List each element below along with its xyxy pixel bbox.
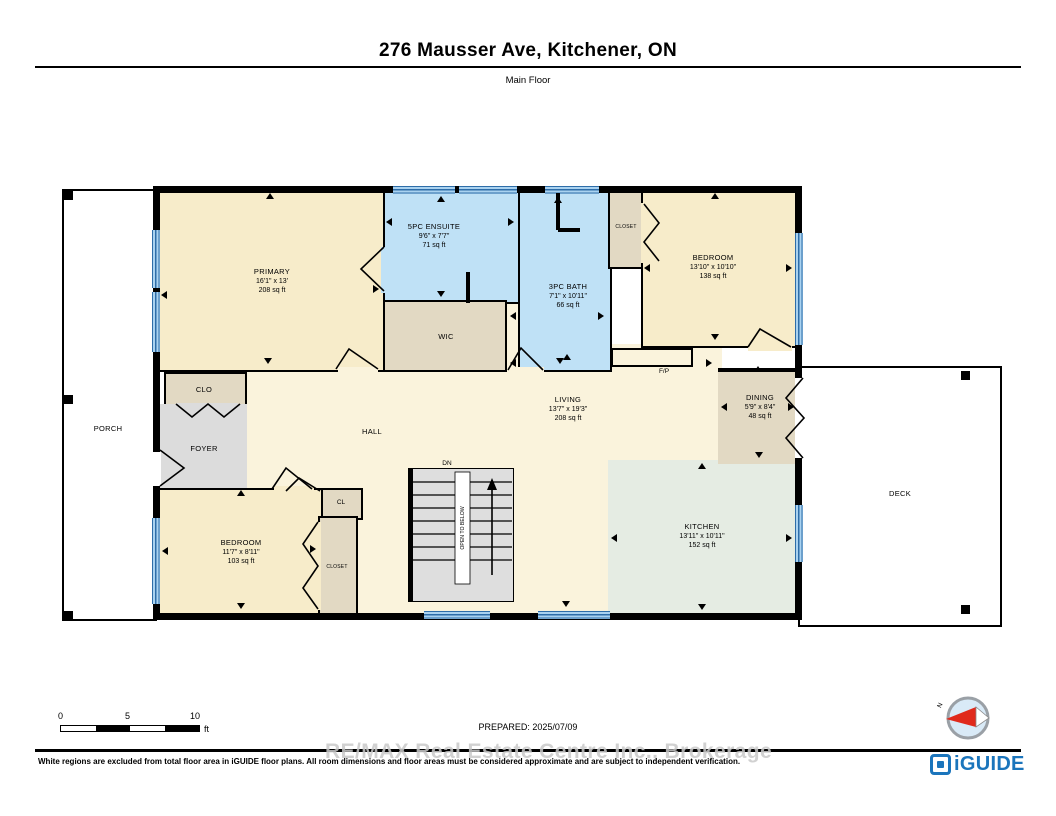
measure-arrow-icon [510, 359, 516, 367]
room-name: BEDROOM [690, 253, 736, 263]
bedroom-tr-door-opening [748, 344, 792, 351]
room-name: 3PC BATH [549, 282, 588, 292]
measure-arrow-icon [611, 534, 617, 542]
porch-area [62, 189, 157, 621]
measure-arrow-icon [698, 604, 706, 610]
measure-arrow-icon [562, 601, 570, 607]
room-name: PRIMARY [254, 267, 290, 277]
floorplan-page: 276 Mausser Ave, Kitchener, ON Main Floo… [0, 0, 1056, 816]
iguide-wordmark: iGUIDE [954, 753, 1025, 776]
window [545, 186, 599, 194]
room-label-closet-top: CLOSET [615, 224, 636, 231]
deck-post [961, 371, 970, 380]
measure-arrow-icon [237, 490, 245, 496]
measure-arrow-icon [386, 218, 392, 226]
clo-door-opening [176, 403, 238, 409]
room-label-wic: WIC [438, 332, 453, 342]
window [152, 518, 160, 604]
stairs-dn-label: DN [442, 460, 451, 468]
room-label-foyer: FOYER [190, 444, 217, 454]
measure-arrow-icon [508, 218, 514, 226]
room-dims: 13'10" x 10'10" [690, 263, 736, 272]
room-label-clo: CLO [196, 385, 212, 395]
patio-door-window [795, 505, 803, 562]
ensuite-door-opening [381, 247, 388, 293]
room-dims: 13'11" x 10'11" [679, 532, 724, 541]
room-label-bath: 3PC BATH 7'1" x 10'11" 66 sq ft [549, 282, 588, 310]
measure-arrow-icon [556, 358, 564, 364]
measure-arrow-icon [437, 196, 445, 202]
room-label-kitchen: KITCHEN 13'11" x 10'11" 152 sq ft [679, 522, 724, 550]
measure-arrow-icon [711, 334, 719, 340]
measure-arrow-icon [510, 312, 516, 320]
window [459, 186, 517, 194]
room-area: 71 sq ft [408, 241, 460, 250]
window [152, 292, 160, 352]
floor-label: Main Floor [0, 75, 1056, 86]
room-label-living: LIVING 13'7" x 19'3" 208 sq ft [549, 395, 587, 423]
window [538, 611, 610, 619]
scale-tick-10: 10 [190, 711, 200, 721]
measure-arrow-icon [554, 197, 562, 203]
measure-arrow-icon [711, 193, 719, 199]
measure-arrow-icon [786, 264, 792, 272]
measure-arrow-icon [721, 403, 727, 411]
measure-arrow-icon [598, 312, 604, 320]
measure-arrow-icon [266, 193, 274, 199]
porch-post [64, 395, 73, 404]
room-label-bedroom-bl: BEDROOM 11'7" x 8'11" 103 sq ft [221, 538, 262, 566]
room-label-bedroom-tr: BEDROOM 13'10" x 10'10" 138 sq ft [690, 253, 736, 281]
measure-arrow-icon [437, 291, 445, 297]
room-area: 48 sq ft [745, 412, 776, 421]
measure-arrow-icon [563, 354, 571, 360]
bath-door-opening [508, 367, 544, 375]
window [152, 230, 160, 288]
measure-arrow-icon [755, 452, 763, 458]
measure-arrow-icon [310, 545, 316, 553]
room-dims: 11'7" x 8'11" [221, 548, 262, 557]
title-divider [35, 66, 1021, 68]
measure-arrow-icon [237, 603, 245, 609]
room-name: LIVING [549, 395, 587, 405]
scale-tick-5: 5 [125, 711, 130, 721]
compass [928, 692, 1012, 747]
primary-door-opening [338, 367, 378, 375]
iguide-logo: iGUIDE [930, 753, 1025, 776]
room-dims: 16'1" x 13' [254, 277, 290, 286]
room-dims: 13'7" x 19'3" [549, 405, 587, 414]
room-name: 5PC ENSUITE [408, 222, 460, 232]
room-name: BEDROOM [221, 538, 262, 548]
room-dims: 9'6" x 7'7" [408, 232, 460, 241]
measure-arrow-icon [788, 403, 794, 411]
measure-arrow-icon [264, 358, 272, 364]
room-name: KITCHEN [679, 522, 724, 532]
room-label-porch: PORCH [94, 424, 123, 434]
iguide-mark-icon [930, 754, 951, 775]
closet-top-door-opening [641, 203, 647, 263]
room-label-dining: DINING 5'9" x 8'4" 48 sq ft [745, 393, 776, 421]
room-area: 152 sq ft [679, 541, 724, 550]
room-area: 103 sq ft [221, 557, 262, 566]
front-door-opening [152, 452, 161, 486]
room-area: 208 sq ft [549, 414, 587, 423]
fireplace-label: F/P [659, 368, 669, 376]
window [795, 233, 803, 345]
deck-post [961, 605, 970, 614]
prepared-date: PREPARED: 2025/07/09 [0, 722, 1056, 732]
disclaimer-text: White regions are excluded from total fl… [38, 757, 740, 766]
measure-arrow-icon [373, 285, 379, 293]
room-label-cl: CL [337, 499, 345, 507]
room-area: 66 sq ft [549, 301, 588, 310]
room-dims: 5'9" x 8'4" [745, 403, 776, 412]
measure-arrow-icon [161, 291, 167, 299]
measure-arrow-icon [698, 463, 706, 469]
room-dims: 7'1" x 10'11" [549, 292, 588, 301]
porch-post [64, 611, 73, 620]
window [393, 186, 455, 194]
measure-arrow-icon [754, 366, 762, 372]
compass-north-label: N [936, 702, 944, 709]
room-name: DINING [745, 393, 776, 403]
measure-arrow-icon [644, 264, 650, 272]
bedroom-bl-door-opening [274, 486, 314, 493]
measure-arrow-icon [162, 547, 168, 555]
room-area: 138 sq ft [690, 272, 736, 281]
room-label-primary: PRIMARY 16'1" x 13' 208 sq ft [254, 267, 290, 295]
measure-arrow-icon [786, 534, 792, 542]
window [424, 611, 490, 619]
porch-post [64, 191, 73, 200]
closet-bl-door-opening [315, 522, 321, 610]
room-label-hall: HALL [362, 427, 382, 437]
room-label-ensuite: 5PC ENSUITE 9'6" x 7'7" 71 sq ft [408, 222, 460, 250]
dining-patio-opening [795, 378, 803, 458]
measure-arrow-icon [706, 359, 712, 367]
scale-tick-0: 0 [58, 711, 63, 721]
compass-ring [948, 698, 988, 738]
page-title: 276 Mausser Ave, Kitchener, ON [0, 40, 1056, 62]
room-label-deck: DECK [889, 489, 911, 499]
room-label-closet-bl: CLOSET [326, 564, 347, 571]
room-area: 208 sq ft [254, 286, 290, 295]
